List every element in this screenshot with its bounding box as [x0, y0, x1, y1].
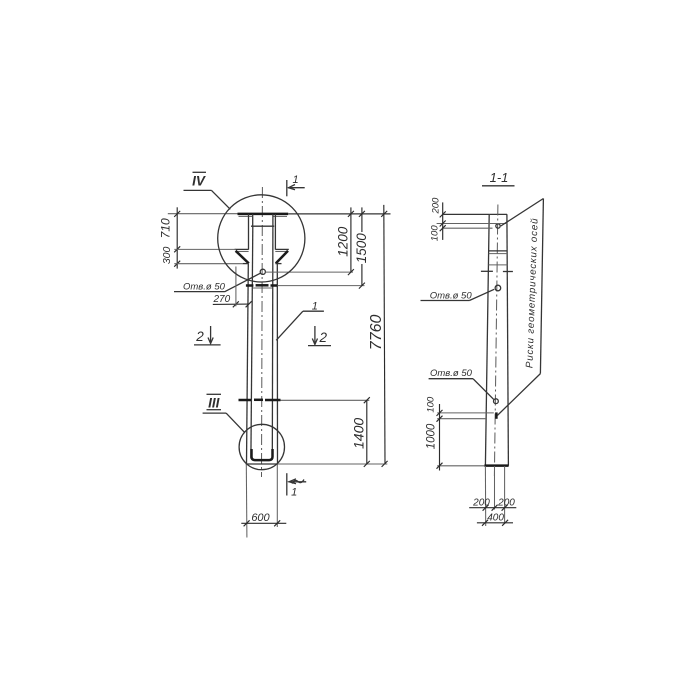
svg-text:1: 1 — [292, 174, 298, 186]
svg-text:1400: 1400 — [351, 418, 367, 449]
svg-text:300: 300 — [161, 246, 173, 264]
svg-text:600: 600 — [251, 512, 270, 524]
svg-text:710: 710 — [159, 218, 173, 238]
svg-text:Отв.ø 50: Отв.ø 50 — [183, 282, 226, 293]
svg-text:2: 2 — [319, 330, 328, 345]
svg-text:200: 200 — [497, 498, 515, 509]
svg-text:Отв.ø 50: Отв.ø 50 — [430, 368, 473, 379]
svg-text:100: 100 — [425, 396, 436, 413]
svg-text:2: 2 — [195, 329, 204, 344]
svg-text:400: 400 — [487, 512, 504, 523]
svg-text:III: III — [208, 396, 220, 411]
svg-text:100: 100 — [429, 225, 440, 242]
svg-text:270: 270 — [212, 294, 230, 305]
svg-text:IV: IV — [192, 174, 206, 189]
svg-text:1500: 1500 — [354, 233, 369, 264]
svg-text:1200: 1200 — [336, 226, 351, 257]
svg-text:1-1: 1-1 — [490, 170, 509, 185]
svg-text:1: 1 — [291, 487, 297, 499]
svg-text:7760: 7760 — [368, 315, 385, 351]
svg-text:200: 200 — [431, 197, 442, 215]
svg-text:200: 200 — [472, 498, 490, 509]
svg-text:1000: 1000 — [426, 423, 438, 449]
